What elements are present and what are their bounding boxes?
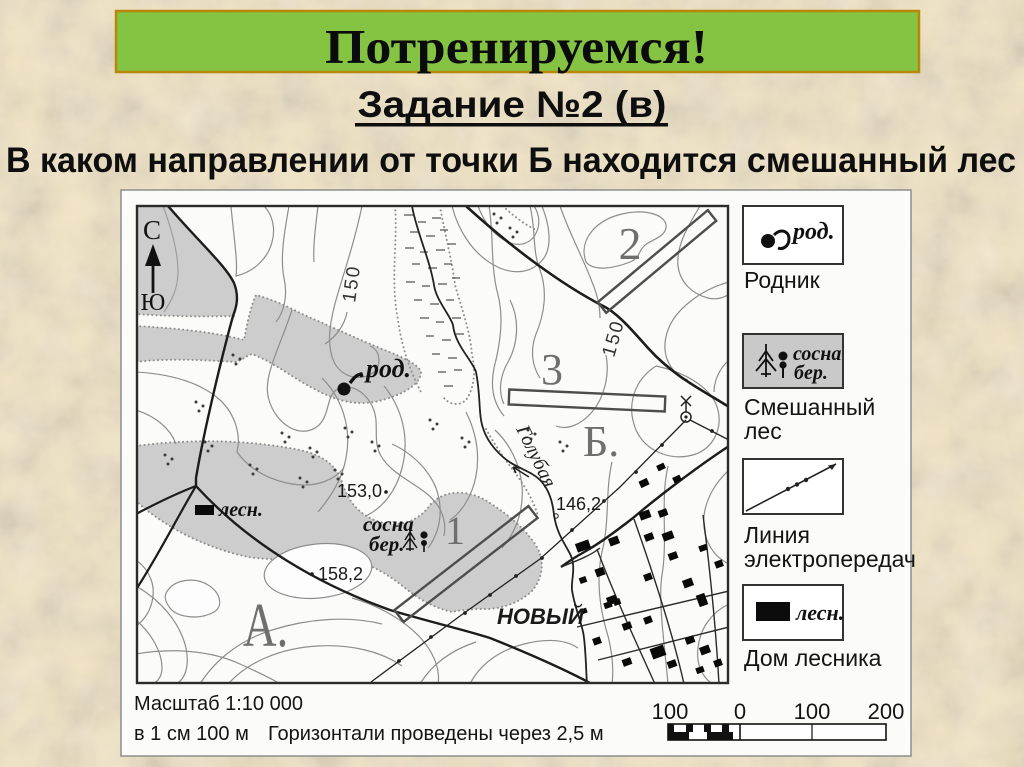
svg-text:лесн.: лесн. [795, 600, 844, 625]
svg-text:лесн.: лесн. [218, 499, 263, 521]
svg-text:Смешанный: Смешанный [744, 394, 875, 420]
svg-text:Потренируемся!: Потренируемся! [325, 19, 708, 74]
svg-text:лес: лес [744, 418, 782, 444]
svg-text:В каком направлении от точки Б: В каком направлении от точки Б находится… [6, 141, 1016, 180]
svg-text:род.: род. [364, 354, 411, 383]
svg-text:0: 0 [734, 699, 746, 724]
svg-text:100: 100 [652, 699, 689, 724]
svg-text:род.: род. [791, 219, 835, 245]
svg-text:НОВЫЙ: НОВЫЙ [497, 603, 585, 629]
svg-text:С: С [143, 215, 161, 245]
svg-text:153,0: 153,0 [337, 481, 382, 501]
svg-text:146,2: 146,2 [556, 494, 601, 514]
svg-text:Линия: Линия [744, 522, 810, 548]
svg-text:А.: А. [243, 591, 288, 660]
svg-text:в 1 см 100 м: в 1 см 100 м [134, 723, 249, 745]
svg-text:Задание №2 (в): Задание №2 (в) [358, 84, 667, 125]
svg-text:1: 1 [445, 508, 465, 553]
svg-text:электропередач: электропередач [744, 546, 916, 572]
svg-text:100: 100 [794, 699, 831, 724]
svg-text:2: 2 [619, 218, 642, 269]
svg-text:Масштаб 1:10 000: Масштаб 1:10 000 [134, 693, 303, 715]
svg-text:3: 3 [541, 345, 563, 394]
svg-text:Б.: Б. [583, 417, 619, 466]
svg-text:158,2: 158,2 [318, 564, 363, 584]
svg-text:Горизонтали проведены через 2,: Горизонтали проведены через 2,5 м [268, 723, 604, 745]
svg-text:200: 200 [868, 699, 905, 724]
svg-text:бер.: бер. [794, 362, 828, 384]
svg-text:Дом лесника: Дом лесника [744, 645, 882, 671]
svg-text:Ю: Ю [141, 290, 166, 316]
svg-text:бер.: бер. [369, 532, 405, 556]
svg-text:Родник: Родник [744, 267, 821, 293]
